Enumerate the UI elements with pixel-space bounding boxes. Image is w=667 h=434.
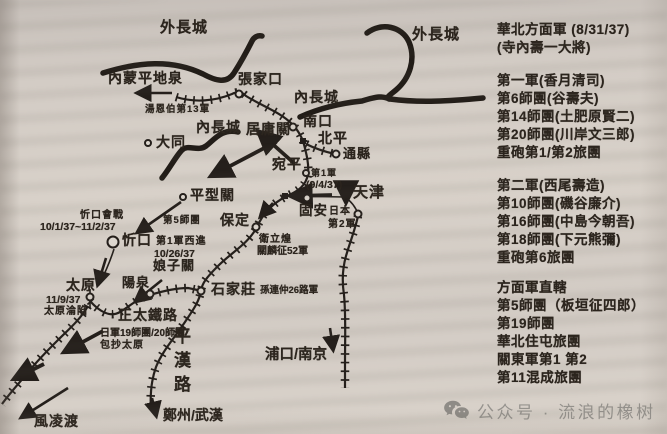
legend-line: 第5師團（板垣征四郎）: [497, 297, 667, 315]
legend-line: 第二軍(西尾壽造): [497, 177, 667, 195]
label-sun-lianzhong-26army: 孫連仲26路軍: [260, 286, 318, 296]
legend-line: 方面軍直轄: [497, 279, 667, 297]
watermark-text: 公众号 · 流浪的橡树: [477, 398, 656, 423]
label-wei-lihuang: 衛立煌: [259, 235, 292, 245]
label-xinkou: 忻口: [122, 233, 152, 247]
label-tang-enbo-13army: 湯恩伯第13軍: [145, 105, 210, 115]
legend-line: 重砲第1/第2旅團: [497, 144, 667, 162]
label-outer-wall-right: 外長城: [412, 27, 460, 42]
label-div5: 第5師團: [163, 216, 201, 226]
label-taiyuan-fall: 太原淪陷: [44, 307, 88, 317]
label-army1-west: 第1軍西進: [156, 237, 207, 247]
label-tianjin: 天津: [353, 185, 385, 200]
label-army1-date: (9/4/37): [306, 180, 342, 191]
legend-title: 華北方面軍 (8/31/37): [497, 21, 667, 39]
label-tongxian: 通縣: [343, 147, 371, 160]
label-encircle-taiyuan: 包抄太原: [100, 341, 144, 351]
label-juyongguan: 居庸關: [246, 122, 291, 136]
label-zhangjiakou: 張家口: [238, 72, 283, 86]
label-xinkou-battle: 忻口會戰: [80, 211, 124, 221]
legend-line: 第16師團(中島今朝吾): [497, 213, 667, 231]
label-yangquan: 陽泉: [122, 276, 150, 289]
label-pingxingguan: 平型關: [190, 188, 235, 202]
scanned-map-page: 外長城 外長城 內蒙平地泉 張家口 湯恩伯第13軍 內長城 內長城 居庸關 南口…: [0, 0, 667, 434]
label-guan: 固安: [299, 204, 328, 218]
legend-line: 華北住屯旅團: [497, 333, 667, 351]
label-wanping: 宛平: [272, 157, 302, 171]
label-nankou: 南口: [303, 114, 333, 128]
label-fenglingdu: 風凌渡: [34, 414, 79, 428]
label-pinghan-railway: 平漢路: [172, 327, 189, 399]
label-pingdiquan: 內蒙平地泉: [108, 71, 183, 85]
label-xinkou-dates: 10/1/37~11/2/37: [40, 222, 116, 233]
label-niangziguan: 娘子關: [153, 259, 195, 272]
legend-line: 第20師團(川岸文三郎): [497, 126, 667, 144]
legend-line: 第6師團(谷壽夫): [497, 90, 667, 108]
label-guan-linzheng-52army: 關麟征52軍: [257, 247, 308, 257]
legend-line: 第10師團(磯谷廉介): [497, 195, 667, 213]
label-baoding: 保定: [220, 213, 250, 227]
railway-jinpu-line: [343, 216, 358, 388]
order-of-battle-legend: 華北方面軍 (8/31/37) (寺內壽一大將) 第一軍(香月清司) 第6師團(…: [497, 21, 667, 387]
legend-line: 第18師團(下元熊彌): [497, 231, 667, 249]
label-taiyuan-date: 11/9/37: [46, 295, 80, 306]
label-inner-wall-right: 內長城: [294, 90, 339, 104]
label-pukou-nanjing: 浦口/南京: [265, 348, 327, 363]
label-japan: 日本: [329, 207, 351, 217]
legend-commander: (寺內壽一大將): [497, 39, 667, 57]
wechat-icon: [443, 399, 470, 422]
label-army1: 第1軍: [311, 169, 337, 178]
great-wall-outer-right: [367, 27, 412, 99]
legend-line: 第14師團(土肥原賢二): [497, 108, 667, 126]
label-taiyuan: 太原: [66, 278, 96, 292]
railway-tongpu-line: [2, 306, 88, 404]
label-outer-wall-left: 外長城: [160, 20, 208, 35]
label-beiping: 北平: [318, 131, 348, 145]
label-zhengtai-railway: 正太鐵路: [118, 308, 178, 322]
legend-line: 重砲第6旅團: [497, 249, 667, 267]
label-datong: 大同: [156, 135, 186, 149]
legend-line: 第11混成旅團: [497, 369, 667, 387]
label-army2: 第2軍: [328, 220, 357, 230]
legend-line: 第一軍(香月清司): [497, 72, 667, 90]
legend-line: 關東軍第1 第2: [497, 351, 667, 369]
label-inner-wall-left: 內長城: [196, 120, 241, 134]
legend-line: 第19師團: [497, 315, 667, 333]
label-shijiazhuang: 石家莊: [211, 282, 256, 296]
watermark: 公众号 · 流浪的橡树: [443, 398, 656, 423]
label-zhengzhou-wuhan: 鄭州/武漢: [163, 408, 223, 422]
